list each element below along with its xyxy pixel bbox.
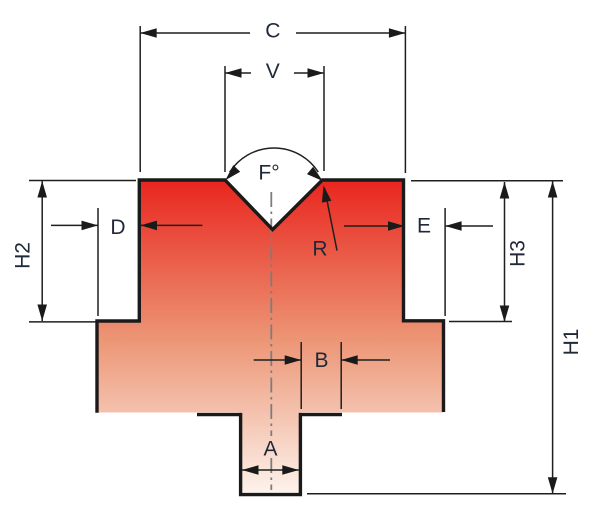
svg-text:C: C xyxy=(265,20,280,43)
svg-text:D: D xyxy=(110,216,125,239)
svg-text:H1: H1 xyxy=(560,329,583,356)
svg-text:R: R xyxy=(312,238,327,261)
svg-text:H2: H2 xyxy=(12,242,35,269)
svg-text:A: A xyxy=(263,438,277,461)
svg-text:B: B xyxy=(314,349,328,372)
svg-text:V: V xyxy=(266,60,280,83)
svg-text:E: E xyxy=(417,215,431,238)
svg-text:F°: F° xyxy=(258,162,279,185)
svg-text:H3: H3 xyxy=(507,240,530,267)
